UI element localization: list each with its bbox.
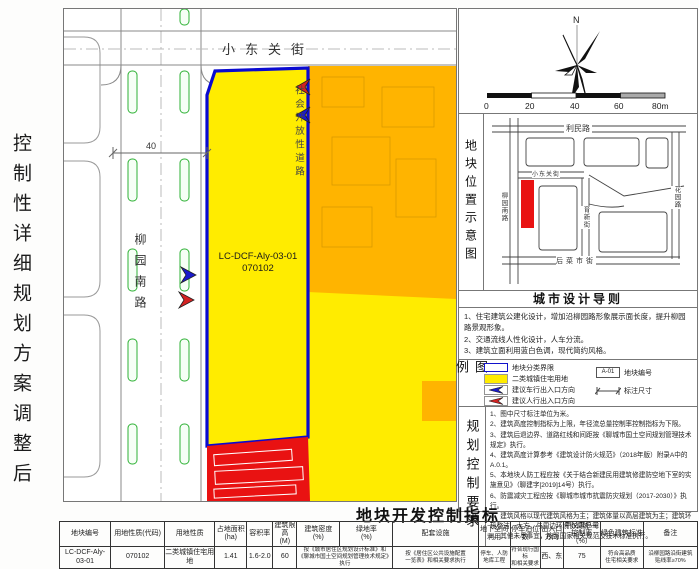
location-section-label: 地块位置示意图 bbox=[459, 114, 484, 290]
cell-parcel-code: LC-DCF-Aly-03-01 bbox=[60, 547, 111, 569]
scale-bar bbox=[487, 93, 665, 98]
col-header: 地块编号 bbox=[60, 522, 111, 547]
street-label-xiaodongguan: 小东关街 bbox=[222, 39, 314, 58]
cell-height-limit: 60 bbox=[273, 547, 297, 569]
col-header: 容积率 bbox=[247, 522, 273, 547]
scale-tick-80m: 80m bbox=[652, 101, 669, 111]
boundary-line-icon bbox=[483, 363, 509, 372]
legend-section-label: 图例 bbox=[459, 360, 483, 406]
scale-tick-40: 40 bbox=[570, 101, 580, 111]
plan-map-panel: 小东关街 柳园南路 社会开放性道路 LC-DCF-Aly-03-01 07010… bbox=[63, 8, 457, 502]
road-label-public-open-road: 社会开放性道路 bbox=[291, 85, 305, 180]
legend-item-parcel-number: A-01 地块编号 bbox=[595, 365, 697, 380]
right-info-panel: N 0 20 40 60 80m bbox=[458, 8, 698, 512]
scale-tick-20: 20 bbox=[525, 101, 535, 111]
planning-item: 2、建筑高度控制指标为上限，年径流总量控制率控制指标为下限。 bbox=[490, 420, 693, 430]
document-title: 控制性详细规划方案调整后 bbox=[7, 133, 34, 493]
legend-column-1: 地块分类界限 二类城镇住宅用地 建议车行出入口方向 建议人行出入口方向 bbox=[483, 362, 595, 406]
design-guidelines-title: 城市设计导则 bbox=[459, 291, 697, 308]
table-header-row: 地块编号 用地性质(代码) 用地性质 占地面积 (ha) 容积率 建筑限高 (M… bbox=[60, 522, 698, 547]
location-map-section: 地块位置示意图 bbox=[459, 114, 697, 291]
cell-parking: 符合现行国标 和相关要求 bbox=[510, 547, 540, 569]
residential-land-icon bbox=[483, 374, 509, 384]
cell-landuse-code: 070102 bbox=[111, 547, 165, 569]
legend-item-label: 建议人行出入口方向 bbox=[512, 396, 575, 406]
parcel-number-box-icon: A-01 bbox=[595, 367, 621, 378]
cell-entrances: 西、东 bbox=[540, 547, 563, 569]
cell-landuse: 二类城镇住宅用地 bbox=[165, 547, 215, 569]
pedestrian-entrance-arrow-west bbox=[179, 292, 194, 308]
col-header: 停车泊位数 bbox=[510, 522, 540, 547]
dimension-symbol-icon bbox=[595, 386, 621, 396]
mini-road-liuyuan: 柳园南路 bbox=[498, 192, 508, 222]
planning-item: 4、建筑高度计算参考《建筑设计防火规范》（2018年版）附录A中的A.0.1。 bbox=[490, 451, 693, 471]
planning-item: 5、本地块人防工程应按《关于结合新建民用建筑修建防空地下室的实施意见》（聊建字[… bbox=[490, 471, 693, 491]
mini-road-yuxin: 育新街 bbox=[580, 206, 590, 229]
compass-scale-section: N 0 20 40 60 80m bbox=[459, 9, 697, 114]
legend-item-dimension: 标注尺寸 bbox=[595, 383, 697, 398]
cell-green-building: 符合高品质 住宅相关要求 bbox=[600, 547, 643, 569]
mini-road-houcaishi: 后菜市街 bbox=[556, 256, 596, 266]
guideline-item: 2、交通流线人性化设计，人车分流。 bbox=[464, 334, 692, 345]
table-data-row: LC-DCF-Aly-03-01 070102 二类城镇住宅用地 1.41 1.… bbox=[60, 547, 698, 569]
legend-items: 地块分类界限 二类城镇住宅用地 建议车行出入口方向 建议人行出入口方向 bbox=[483, 360, 697, 406]
col-header: 绿地率 (%) bbox=[340, 522, 393, 547]
mini-road-xiaodongguan: 小东关街 bbox=[532, 169, 560, 178]
mini-road-huayuan: 花园路 bbox=[671, 186, 681, 209]
design-guidelines-body: 1、住宅建筑公建化设计，增加沿柳园路形象展示面长度，提升柳园路景观形象。 2、交… bbox=[459, 308, 697, 359]
parcel-subcode: 070102 bbox=[202, 263, 314, 275]
mini-map-parcel-highlight bbox=[521, 180, 534, 228]
col-header: 占地面积 (ha) bbox=[215, 522, 247, 547]
north-label: N bbox=[573, 15, 580, 25]
legend-item-label: 地块编号 bbox=[624, 368, 652, 378]
cell-underground: 停车、人防 地库工程 bbox=[478, 547, 510, 569]
scale-labels: 0 20 40 60 80m bbox=[484, 101, 669, 111]
cell-runoff: 75 bbox=[563, 547, 600, 569]
col-header: 绿色建筑标准 bbox=[600, 522, 643, 547]
pedestrian-arrow-icon bbox=[483, 396, 509, 406]
legend-item-residential: 二类城镇住宅用地 bbox=[483, 374, 595, 385]
col-header: 配套设施 bbox=[393, 522, 478, 547]
legend-column-2: A-01 地块编号 标注尺寸 bbox=[595, 362, 697, 406]
col-header: 备注 bbox=[643, 522, 697, 547]
adjacent-orange-patch bbox=[422, 381, 456, 421]
col-header: 年径流总量 控制率（%） bbox=[563, 522, 600, 547]
vehicle-arrow-icon bbox=[483, 385, 509, 395]
location-section-title: 地块位置示意图 bbox=[463, 139, 480, 265]
col-header: 用地性质 bbox=[165, 522, 215, 547]
road-label-liuyuan-south: 柳园南路 bbox=[132, 233, 149, 317]
location-mini-map: 利民路 柳园南路 小东关街 育新街 花园路 后菜市街 bbox=[484, 114, 697, 290]
legend-item-boundary: 地块分类界限 bbox=[483, 363, 595, 374]
col-header: 地下空间 利用 bbox=[478, 522, 510, 547]
scale-tick-0: 0 bbox=[484, 101, 489, 111]
compass-scale-drawing: N 0 20 40 60 80m bbox=[459, 9, 695, 112]
compass-rose-icon bbox=[555, 31, 600, 99]
dimension-value: 40 bbox=[146, 141, 156, 151]
parcel-code-label: LC-DCF-Aly-03-01 070102 bbox=[202, 251, 314, 276]
cell-far: 1.6-2.0 bbox=[247, 547, 273, 569]
west-block-outlines bbox=[64, 37, 100, 477]
dimension-line-40 bbox=[109, 147, 211, 159]
col-header: 出入口 方向 bbox=[540, 522, 563, 547]
legend-item-label: 二类城镇住宅用地 bbox=[512, 374, 568, 384]
cell-remarks: 沿柳园路沿街建筑 贴线率≥70% bbox=[643, 547, 697, 569]
guideline-item: 3、建筑立面利用蓝白色调，现代简约风格。 bbox=[464, 345, 692, 356]
col-header: 建筑密度 (%) bbox=[297, 522, 340, 547]
legend-item-vehicle-entry: 建议车行出入口方向 bbox=[483, 385, 595, 396]
parcel-code: LC-DCF-Aly-03-01 bbox=[202, 251, 314, 263]
cell-area: 1.41 bbox=[215, 547, 247, 569]
guideline-item: 1、住宅建筑公建化设计，增加沿柳园路形象展示面长度，提升柳园路景观形象。 bbox=[464, 311, 692, 334]
scale-tick-60: 60 bbox=[614, 101, 624, 111]
legend-item-pedestrian-entry: 建议人行出入口方向 bbox=[483, 396, 595, 407]
planning-item: 1、图中尺寸标注单位为米。 bbox=[490, 410, 693, 420]
planning-item: 6、防震减灾工程应按《聊城市城市抗震防灾规划（2017-2030）》执行。 bbox=[490, 492, 693, 512]
development-indicators-table: 地块编号 用地性质(代码) 用地性质 占地面积 (ha) 容积率 建筑限高 (M… bbox=[59, 521, 698, 569]
col-header: 建筑限高 (M) bbox=[273, 522, 297, 547]
parcel-number-sample: A-01 bbox=[596, 367, 620, 378]
mini-road-limin: 利民路 bbox=[564, 123, 592, 134]
cell-density-greenrate: 按《城市居住区规划设计标准》和 《聊城市国土空间规划管理技术规定》执行 bbox=[297, 547, 393, 569]
legend-item-label: 地块分类界限 bbox=[512, 363, 554, 373]
col-header: 用地性质(代码) bbox=[111, 522, 165, 547]
planning-item: 3、建筑后退边界、道路红线和间距按《聊城市国土空间规划管理技术规定》执行。 bbox=[490, 431, 693, 451]
design-guidelines-section: 城市设计导则 1、住宅建筑公建化设计，增加沿柳园路形象展示面长度，提升柳园路景观… bbox=[459, 291, 697, 360]
legend-item-label: 建议车行出入口方向 bbox=[512, 385, 575, 395]
cell-facilities: 按《居住区公共设施配置 一览表》和相关要求执行 bbox=[393, 547, 478, 569]
legend-section: 图例 地块分类界限 二类城镇住宅用地 建议车行出入口方向 bbox=[459, 360, 697, 407]
legend-item-label: 标注尺寸 bbox=[624, 386, 652, 396]
